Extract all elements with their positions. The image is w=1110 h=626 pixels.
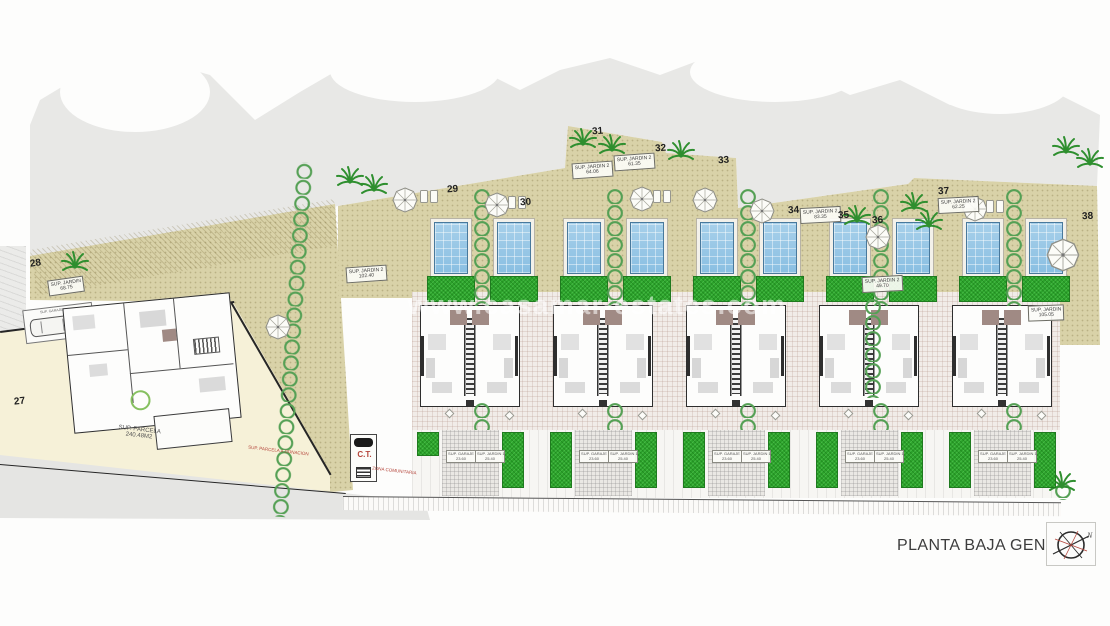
sun-lounger [430,190,438,203]
area-label: SUP. GARAJE23.60 [978,450,1008,463]
ct-label: C.T. [351,450,378,459]
umbrella-icon [392,187,418,213]
front-garden-strip [502,432,524,488]
garden-label-31: SUP. JARDIN 264.06 [571,161,613,180]
pool [630,222,664,274]
pool [966,222,1000,274]
lot-29-30: SUP. GARAJE23.60 SUP. JARDIN 125.40 [412,428,532,500]
plot-number-31: 31 [592,126,604,138]
area-label-line: 25.40 [477,457,503,462]
front-garden-strip [901,432,923,488]
sun-lounger [663,190,671,203]
garden-label-32: SUP. JARDIN 261.35 [613,153,655,172]
area-label-line: 25.40 [876,457,902,462]
plot-number-35: 35 [838,210,850,222]
label-line: 105.05 [1031,312,1062,319]
garden-label-38: SUP. JARDIN105.05 [1028,304,1065,321]
garden-label-36: SUP. JARDIN 249.70 [862,275,903,293]
umbrella-icon [865,224,891,250]
umbrella-icon [629,186,655,212]
area-label-line: 23.60 [980,457,1006,462]
plot-number-32: 32 [655,143,667,155]
area-label: SUP. JARDIN 125.40 [741,450,771,463]
pool [497,222,531,274]
bush-chain [862,298,884,398]
palm-tree-icon [914,210,944,240]
front-garden-strip [768,432,790,488]
area-label-line: 25.40 [610,457,636,462]
garden-label-29: SUP. JARDIN 2102.40 [345,265,387,284]
area-label: SUP. GARAJE23.60 [845,450,875,463]
terrain-patch [330,40,500,102]
area-label: SUP. JARDIN 125.40 [475,450,505,463]
sun-lounger [508,196,516,209]
front-garden-strip [550,432,572,488]
area-label: SUP. GARAJE23.60 [712,450,742,463]
sun-lounger [420,190,428,203]
lot-35-36: SUP. GARAJE23.60 SUP. JARDIN 125.40 [811,428,931,500]
transformer-logo [354,438,373,447]
umbrella-icon [749,198,775,224]
umbrella-icon [265,314,291,340]
pool [763,222,797,274]
area-label-line: 23.60 [448,457,474,462]
front-garden-strip [683,432,705,488]
plot-number-33: 33 [718,155,730,167]
watermark: www.casamar-estates.com [408,290,787,321]
note-zona-comunitaria: ZONA COMUNITARIA [372,465,417,475]
front-garden-strip [816,432,838,488]
site-plan: SUP. GARAJE [0,0,1110,626]
lawn [1022,276,1070,302]
area-label-line: 23.60 [847,457,873,462]
plot-number-30: 30 [520,197,532,209]
area-label: SUP. JARDIN 125.40 [1007,450,1037,463]
front-garden-strip [1034,432,1056,488]
area-label: SUP. JARDIN 125.40 [608,450,638,463]
lot-31-32: SUP. GARAJE23.60 SUP. JARDIN 125.40 [545,428,665,500]
pool [567,222,601,274]
compass-icon [1051,527,1091,563]
bush-chain [1003,188,1025,306]
pool [434,222,468,274]
area-label-line: 23.60 [714,457,740,462]
garden-label-34: SUP. JARDIN 283.35 [800,206,841,224]
compass-north-label: N [1087,531,1092,540]
lot-33-34: SUP. GARAJE23.60 SUP. JARDIN 125.40 [678,428,798,500]
area-label: SUP. GARAJE23.60 [579,450,609,463]
palm-tree-icon [666,140,696,170]
transformer-stripes-icon [356,467,371,478]
front-garden-strip [417,432,439,456]
area-label-line: 23.60 [581,457,607,462]
villa-stair-hatch [193,336,220,354]
umbrella-icon [484,192,510,218]
garden-label-37: SUP. JARDIN 262.25 [938,196,979,214]
terrain-patch [690,42,860,102]
sun-lounger [653,190,661,203]
lawn [959,276,1007,302]
spa-circle-icon [130,389,152,411]
plot-number-27: 27 [13,395,25,407]
plot-number-38: 38 [1082,211,1094,223]
plot-number-34: 34 [788,205,800,217]
plot-number-36: 36 [872,215,884,227]
terrain-patch [930,52,1070,114]
area-label: SUP. GARAJE23.60 [446,450,476,463]
palm-tree-icon [1075,148,1105,178]
plot-number-37: 37 [938,186,950,198]
area-label: SUP. JARDIN 125.40 [874,450,904,463]
plot-number-29: 29 [447,184,459,196]
palm-tree-icon [359,174,389,204]
transformer-box: C.T. [350,434,377,482]
plot-number-28: 28 [29,257,42,269]
compass-rose: N [1046,522,1096,566]
pool [700,222,734,274]
lot-37-38: SUP. GARAJE23.60 SUP. JARDIN 125.40 [944,428,1064,500]
umbrella-icon [1046,238,1080,272]
front-garden-strip [635,432,657,488]
sun-lounger [996,200,1004,213]
bush-chain [604,188,626,306]
sun-lounger [986,200,994,213]
area-label-line: 25.40 [1009,457,1035,462]
terrain-patch [60,52,210,132]
umbrella-icon [692,187,718,213]
area-label-line: 25.40 [743,457,769,462]
front-garden-strip [949,432,971,488]
